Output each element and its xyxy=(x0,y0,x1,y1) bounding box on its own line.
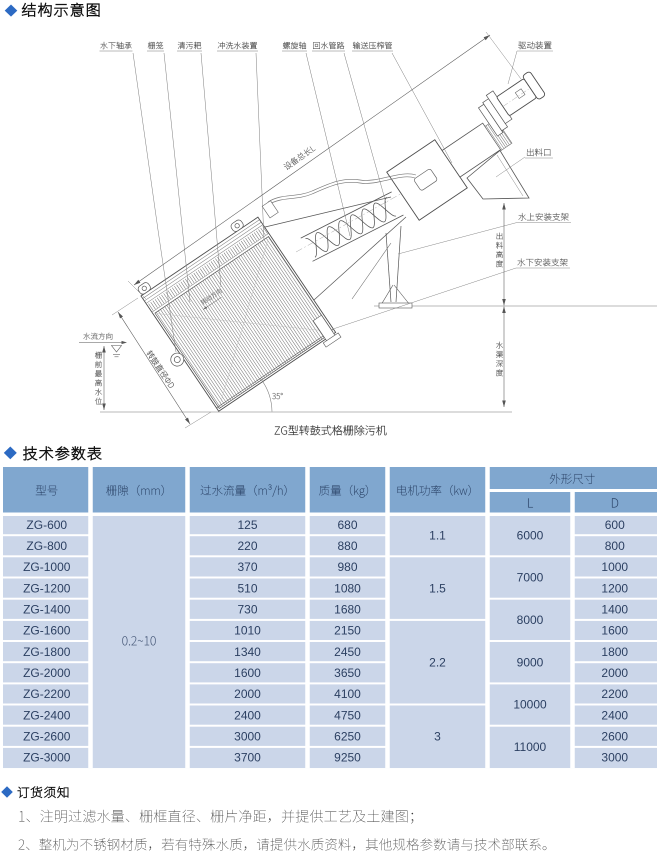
svg-text:4100: 4100 xyxy=(334,687,361,701)
svg-text:7000: 7000 xyxy=(517,571,544,585)
svg-text:3650: 3650 xyxy=(334,666,361,680)
svg-text:1.5: 1.5 xyxy=(429,581,446,595)
svg-text:ZG-1800: ZG-1800 xyxy=(23,645,71,659)
svg-text:1200: 1200 xyxy=(601,581,628,595)
svg-text:ZG-2000: ZG-2000 xyxy=(23,666,71,680)
svg-text:2600: 2600 xyxy=(601,729,628,743)
svg-text:220: 220 xyxy=(237,539,257,553)
svg-text:2000: 2000 xyxy=(601,666,628,680)
svg-text:ZG-600: ZG-600 xyxy=(26,518,67,532)
svg-text:ZG-2400: ZG-2400 xyxy=(23,708,71,722)
svg-text:ZG-3000: ZG-3000 xyxy=(23,751,71,765)
svg-text:125: 125 xyxy=(237,518,257,532)
svg-text:3000: 3000 xyxy=(601,751,628,765)
svg-text:ZG-1600: ZG-1600 xyxy=(23,624,71,638)
svg-text:ZG-800: ZG-800 xyxy=(26,539,67,553)
svg-text:980: 980 xyxy=(337,560,357,574)
svg-text:1600: 1600 xyxy=(234,666,261,680)
svg-text:9250: 9250 xyxy=(334,751,361,765)
svg-text:ZG-2600: ZG-2600 xyxy=(23,729,71,743)
svg-text:1.1: 1.1 xyxy=(429,528,446,542)
svg-text:3: 3 xyxy=(434,729,441,743)
svg-text:510: 510 xyxy=(237,581,257,595)
svg-text:800: 800 xyxy=(605,539,625,553)
svg-text:1340: 1340 xyxy=(234,645,261,659)
svg-text:2.2: 2.2 xyxy=(429,655,446,669)
svg-text:1680: 1680 xyxy=(334,602,361,616)
svg-text:ZG-1200: ZG-1200 xyxy=(23,581,71,595)
svg-text:2150: 2150 xyxy=(334,624,361,638)
svg-text:2400: 2400 xyxy=(601,708,628,722)
svg-text:8000: 8000 xyxy=(517,613,544,627)
svg-text:ZG-2200: ZG-2200 xyxy=(23,687,71,701)
svg-text:1010: 1010 xyxy=(234,624,261,638)
svg-text:2000: 2000 xyxy=(234,687,261,701)
svg-text:3700: 3700 xyxy=(234,751,261,765)
svg-text:ZG-1400: ZG-1400 xyxy=(23,602,71,616)
svg-text:600: 600 xyxy=(605,518,625,532)
svg-text:2200: 2200 xyxy=(601,687,628,701)
svg-text:6250: 6250 xyxy=(334,729,361,743)
svg-text:2450: 2450 xyxy=(334,645,361,659)
svg-text:9000: 9000 xyxy=(517,655,544,669)
svg-text:1600: 1600 xyxy=(601,624,628,638)
svg-text:10000: 10000 xyxy=(513,698,547,712)
svg-text:680: 680 xyxy=(337,518,357,532)
svg-text:ZG-1000: ZG-1000 xyxy=(23,560,71,574)
svg-text:880: 880 xyxy=(337,539,357,553)
svg-text:2400: 2400 xyxy=(234,708,261,722)
svg-text:370: 370 xyxy=(237,560,257,574)
svg-text:4750: 4750 xyxy=(334,708,361,722)
svg-text:6000: 6000 xyxy=(517,528,544,542)
svg-text:11000: 11000 xyxy=(514,740,547,754)
svg-text:1000: 1000 xyxy=(601,560,628,574)
svg-text:1400: 1400 xyxy=(601,602,628,616)
svg-text:1800: 1800 xyxy=(601,645,628,659)
svg-text:1080: 1080 xyxy=(334,581,361,595)
svg-text:730: 730 xyxy=(237,602,257,616)
svg-text:3000: 3000 xyxy=(234,729,261,743)
